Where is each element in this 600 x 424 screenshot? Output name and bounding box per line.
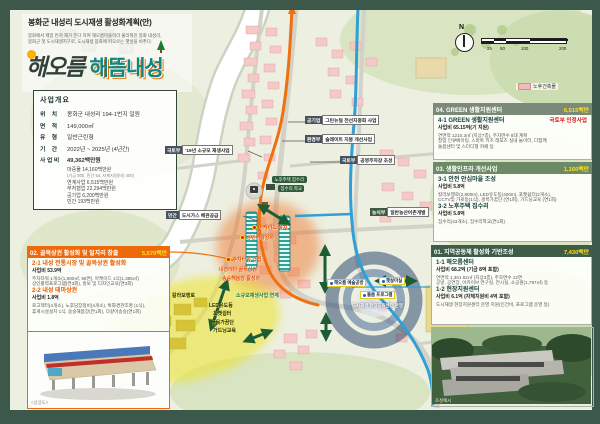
panel-03-body: 3-1 안전 안심마을 조성 사업비 5.8억 칼라보행로(2,800m), L… (433, 174, 592, 242)
map-label-slate-roof: 환경부 슬레이트 지붕 개선사업 (305, 134, 375, 144)
budget-detail: 민간 193백만원 (67, 199, 170, 205)
panel-02-amount: 5,570백만 (142, 248, 167, 257)
item-1-1-line: 공방, 공연장, 아카이브 연구실, 전시실, 소공원(1,797㎡) 등 (436, 280, 587, 286)
map-label-rural-dev: 농식부 일반농산어촌개발 (370, 207, 429, 217)
panel-02-commercial: 02. 골목상권 활성화 및 일자리 창출 5,570백만 2-1 내성 전통시… (27, 246, 170, 409)
ministry-text: 도시가스 배관공급 (179, 210, 222, 220)
item-2-1-name: 2-1 내성 전통시장 및 골목상권 활성화 (32, 262, 165, 268)
item-1-1-name: 1-1 해오름센터 (436, 261, 587, 267)
panel-04-body: 4-1 GREEN 생활지원센터 국토부 인정사업 사업비 65.15억(기 지… (433, 115, 592, 160)
spot-pocket-rest: 포켓쉼터 (213, 310, 231, 317)
blue-dot-icon (330, 282, 333, 285)
item-4-1-line: 돌봄센터 및 스터디형 카페 등 (438, 144, 587, 150)
map-label-green-newdeal: 공기업 그린뉴딜 전선지중화 사업 (305, 115, 379, 125)
panel-03-header: 03. 생활인프라 개선사업 1,160백만 (433, 162, 592, 174)
plan-description: 봉화에서 제일 먼저 해가 뜬다 하여 해오름마을이라 불리워진 봉화 내성리,… (28, 33, 213, 45)
market-rendering-photo: <상상도> (27, 332, 170, 409)
item-4-1-cost: 사업비 65.15억(기 지원) (438, 126, 587, 132)
roundabout (246, 183, 262, 199)
plan-description-line2: 봉화군 첫 도시재생지구로, 도시재생 봉화에 떠오르는 햇살을 비추다. (28, 39, 213, 45)
center-label-art-studio: 해오름 예술공방 (327, 279, 366, 287)
logo-main-text: 해뜸내성 (89, 52, 162, 82)
ministry-badge: 국토부 (340, 156, 357, 164)
panel-02-body: 2-1 내성 전통시장 및 골목상권 활성화 사업비 53.9억 주차타워 1개… (27, 258, 170, 332)
panel-04-title: 04. GREEN 생활지원센터 (436, 105, 502, 114)
overview-row-area: 면 적149,000㎡ (40, 121, 170, 130)
blue-dot-icon (363, 294, 366, 297)
overview-row-period: 기 간2022년 ~ 2025년 (4년간) (40, 144, 170, 153)
ministry-badge: 농식부 (370, 208, 387, 216)
overview-row-location: 위 치봉화군 내성리 194-1번지 일원 (40, 109, 170, 118)
blue-dot-icon (382, 280, 385, 283)
overview-row-type: 유 형일반근린형 (40, 132, 170, 141)
panel-01-amount: 7,430백만 (564, 247, 589, 256)
center-label-care-program: 돌봄 프로그램 (360, 291, 395, 299)
item-2-2-line: 로고젝터(4개소), 노후담장정비(4개소), 특화경관조명 (1식), (32, 303, 165, 309)
panel-01-body: 1-1 해오름센터 사업비 68.2억 (기금 8억 포함) 연면적 1,301… (431, 257, 592, 325)
ministry-text: 슬레이트 지붕 개선사업 (322, 134, 375, 144)
center-label-support-center: 도시재생 현장지원센터 운영 (352, 303, 403, 309)
center-label-sunshine: 햇살마실 (379, 277, 405, 285)
photo-caption: <상상도> (31, 400, 48, 406)
item-2-1-line: 상인활력프로그램(연3회), 홍보 및 디자인교육(연3회) (32, 281, 165, 287)
panel-04-header: 04. GREEN 생활지원센터 6,515백만 (433, 103, 592, 115)
map-label-public-parking: 국토부 공영주차장 조성 (340, 155, 395, 165)
panel-01-header: 01. 지역공동체 활성화 기반조성 7,430백만 (431, 245, 592, 257)
spot-merchant: 상인역량강화 (240, 234, 274, 241)
budget-details: 마중물 14,160백만원 (기금 800, 민간 54, 자체지원(비) 40… (67, 167, 170, 205)
item-2-2-line: 휴게시설설치 1식, 송숭해봄장(연1회), 다같이송숭(연1회) (32, 309, 165, 315)
map-label-city-gas: 민간 도시가스 배관공급 (166, 210, 221, 220)
page-title: 봉화군 내성리 도시재생 활성화계획(안) (28, 17, 208, 28)
panel-03-title: 03. 생활인프라 개선사업 (436, 164, 497, 173)
item-3-1-cost: 사업비 5.8억 (438, 185, 587, 191)
pine-tree-icon (157, 40, 165, 50)
project-overview-box: 사업개요 위 치봉화군 내성리 194-1번지 일원 면 적149,000㎡ 유… (33, 90, 177, 210)
spot-regen-link-note: 소규모재생사업 연계 (236, 292, 279, 299)
spot-arcade: 아케이드 설치 (252, 224, 288, 231)
scale-tick: 25 (487, 46, 492, 51)
spot-alley-team: 골목가꿈단 (211, 319, 234, 326)
market-rendering-art (28, 332, 168, 405)
ministry-approved-tag: 국토부 인정사업 (549, 119, 587, 125)
legend-old-buildings: 노후건축물 (516, 83, 558, 90)
photo-caption: 조성예시 (435, 398, 451, 404)
center-zone-rings (332, 258, 416, 342)
map-label-small-regen: 국토부 '19년 소규모 재생사업 (165, 145, 233, 155)
spot-gardening: 가드닝교육 (213, 327, 236, 334)
item-1-2-line: 도시재생 현장지원센터 운영 지원(인건비, 프로그램 운영 등) (436, 302, 587, 308)
panel-02-header: 02. 골목상권 활성화 및 일자리 창출 5,570백만 (27, 246, 170, 258)
item-3-1-name: 3-1 안전 안심마을 조성 (438, 178, 587, 184)
ministry-badge: 환경부 (305, 135, 322, 143)
ministry-text: 일반농산어촌개발 (387, 207, 428, 217)
panel-02-title: 02. 골목상권 활성화 및 일자리 창출 (30, 248, 118, 257)
panel-03-amount: 1,160백만 (564, 164, 589, 173)
spot-dot-icon (252, 225, 257, 230)
legend-swatch (518, 83, 531, 90)
item-3-2-line: 집수리(43개소), 집수리학교(연1회) (438, 219, 587, 225)
overview-row-budget: 사 업 비49,362백만원 (40, 155, 170, 164)
item-2-2-cost: 사업비 1.8억 (32, 296, 165, 302)
center-rendering-art (432, 328, 591, 404)
ministry-badge: 공기업 (305, 116, 322, 124)
scale-tick: 200 (559, 46, 566, 51)
ministry-text: '19년 소규모 재생사업 (182, 145, 232, 155)
item-1-1-cost: 사업비 68.2억 (기금 8억 포함) (436, 268, 587, 274)
item-1-2-cost: 사업비 6.1억 (자체지원비 4억 포함) (436, 295, 587, 301)
pill-house-repair: 노후주택 집수리 (272, 176, 307, 183)
center-rendering-photo: 조성예시 (431, 327, 594, 407)
panel-01-title: 01. 지역공동체 활성화 기반조성 (434, 247, 514, 256)
brand-logo: 해오름 해뜸내성 (26, 48, 163, 82)
ministry-text: 공영주차장 조성 (357, 155, 395, 165)
logo-script-text: 해오름 (26, 48, 83, 82)
overview-title: 사업개요 (40, 95, 170, 105)
route-orange-arrow (288, 4, 296, 14)
pill-repair-school: 집수리 학교 (278, 185, 304, 192)
scale-tick: 50 (500, 46, 505, 51)
spot-parking-tower: 주차타워 건립 (226, 256, 262, 263)
spot-color-path: 칼라보행로 (172, 292, 195, 299)
ministry-badge: 국토부 (165, 146, 182, 154)
ministry-text: 그린뉴딜 전선지중화 사업 (322, 115, 379, 125)
scale-tick: 100 (521, 46, 528, 51)
item-3-1-line: CCTV및 가로등(1식), 골목가꿈단 (연1회), 가드닝교육 (연1회) (438, 197, 587, 203)
item-2-1-cost: 사업비 53.9억 (32, 269, 165, 275)
ministry-badge: 민간 (166, 211, 179, 219)
spot-dot-icon (240, 235, 245, 240)
scale-bar (481, 38, 567, 44)
item-3-2-cost: 사업비 5.8억 (438, 212, 587, 218)
sun-icon (27, 50, 36, 59)
poster-frame: 봉화군 내성리 도시재생 활성화계획(안) 봉화에서 제일 먼저 해가 뜬다 하… (0, 0, 600, 424)
spot-market-festival: 송숭해봄장 활성화 (222, 275, 260, 282)
spot-led-light: LED유도등 (209, 302, 233, 309)
legend-label: 노후건축물 (533, 83, 556, 90)
north-label: N (459, 24, 464, 31)
item-4-1-name: 4-1 GREEN 생활지원센터 국토부 인정사업 (438, 119, 587, 125)
panel-04-amount: 6,515백만 (564, 105, 589, 114)
spot-theme-street: 내성테마 골목상권 (219, 266, 257, 273)
spot-dot-icon (226, 257, 231, 262)
north-compass-icon (455, 33, 474, 52)
